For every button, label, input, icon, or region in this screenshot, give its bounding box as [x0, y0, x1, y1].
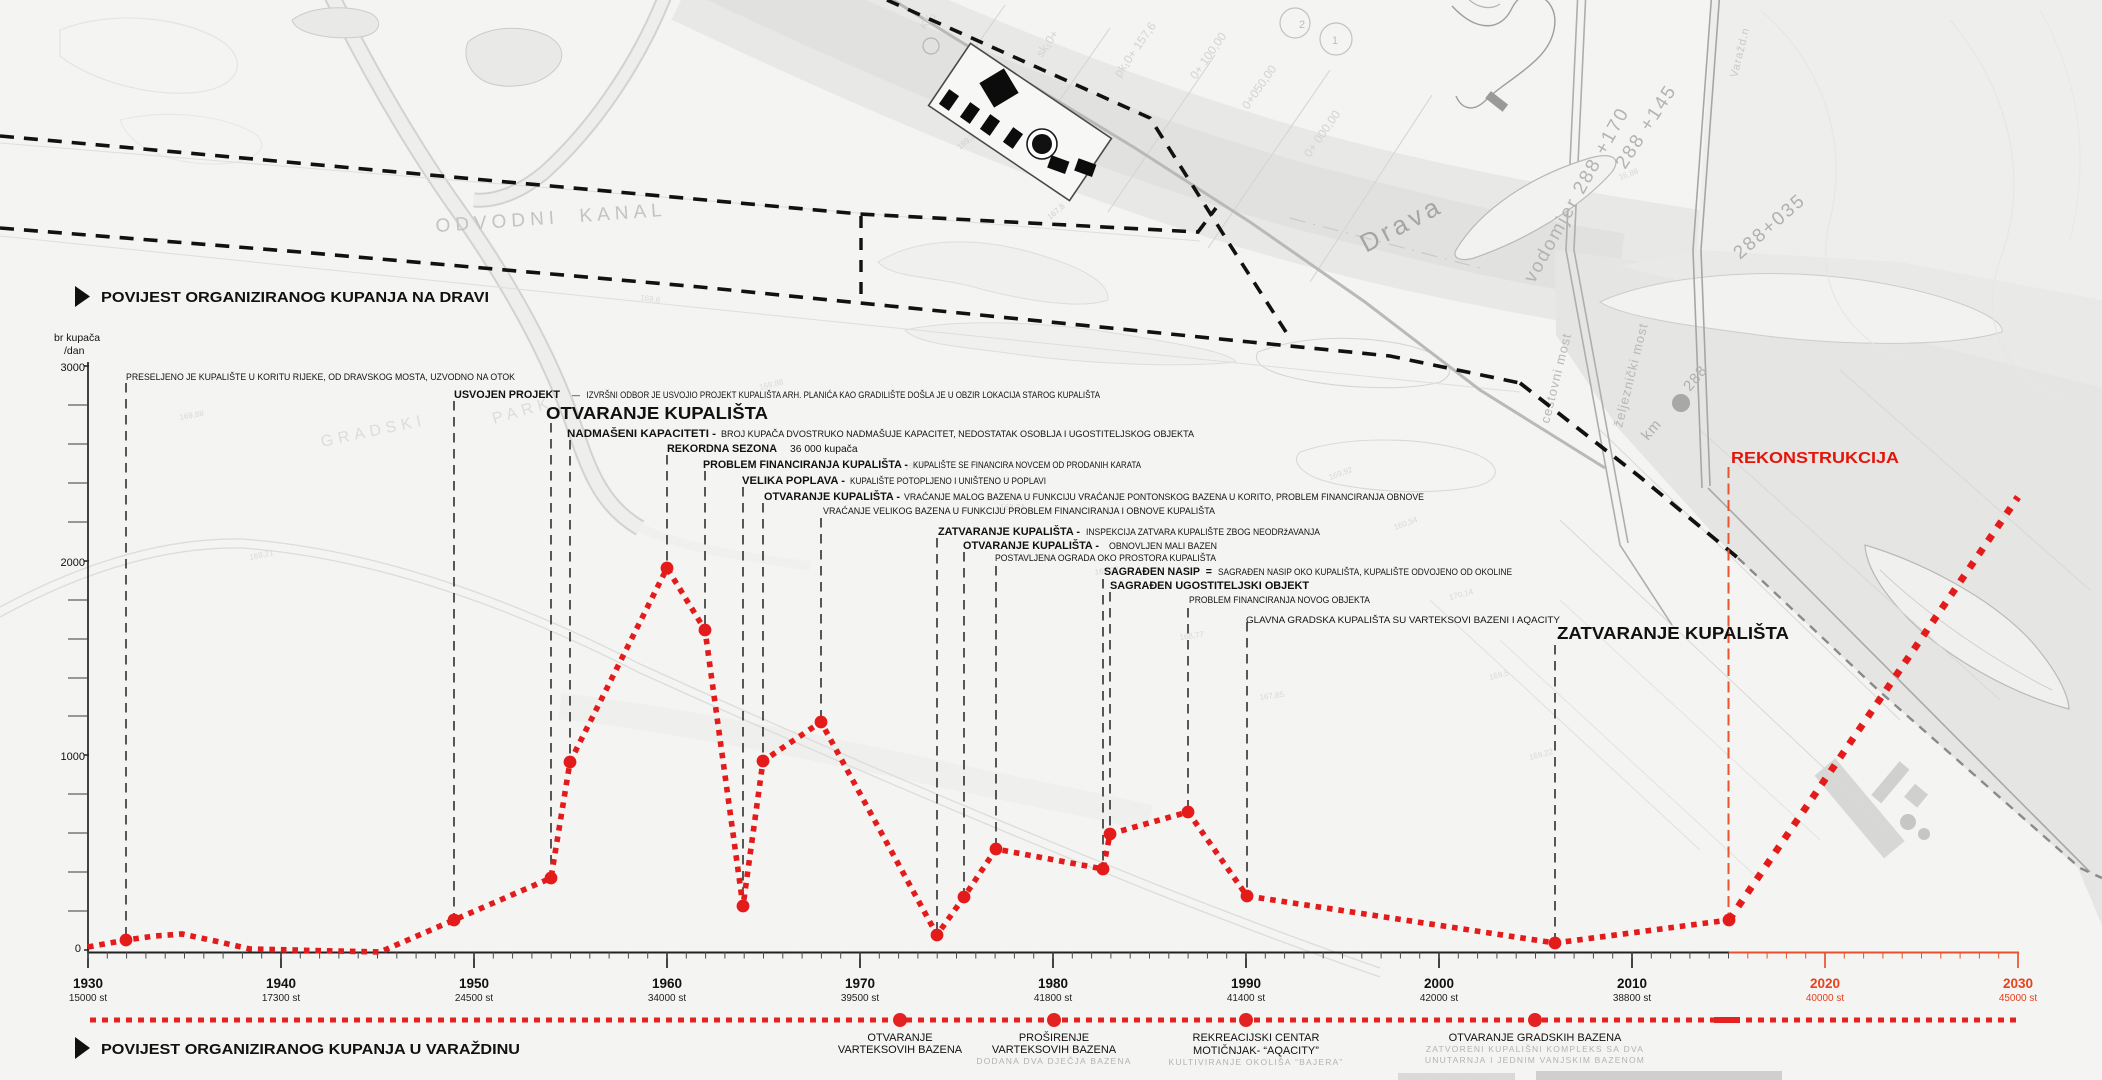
svg-text:VARTEKSOVIH BAZENA: VARTEKSOVIH BAZENA — [992, 1044, 1117, 1056]
svg-text:OTVARANJE KUPALIŠTA: OTVARANJE KUPALIŠTA — [546, 402, 768, 423]
svg-text:br kupača: br kupača — [54, 332, 100, 344]
svg-text:1970: 1970 — [845, 976, 875, 991]
svg-text:34000 st: 34000 st — [648, 993, 687, 1004]
svg-text:OTVARANJE KUPALIŠTA -: OTVARANJE KUPALIŠTA - — [764, 490, 900, 503]
svg-text:OTVARANJE KUPALIŠTA -: OTVARANJE KUPALIŠTA - — [963, 539, 1099, 552]
svg-text:2020: 2020 — [1810, 976, 1840, 991]
svg-text:POVIJEST ORGANIZIRANOG KUPANJA: POVIJEST ORGANIZIRANOG KUPANJA NA DRAVI — [101, 289, 489, 306]
svg-text:1: 1 — [1332, 35, 1338, 47]
svg-text:REKORDNA SEZONA: REKORDNA SEZONA — [667, 443, 777, 455]
svg-text:VRAĆANJE MALOG BAZENA U FUNKCI: VRAĆANJE MALOG BAZENA U FUNKCIJU VRAĆANJ… — [904, 492, 1424, 502]
svg-text:PROBLEM FINANCIRANJA NOVOG OBJ: PROBLEM FINANCIRANJA NOVOG OBJEKTA — [1189, 595, 1371, 605]
svg-text:PRESELJENO JE KUPALIŠTE U KORI: PRESELJENO JE KUPALIŠTE U KORITU RIJEKE,… — [126, 372, 516, 382]
svg-text:1000: 1000 — [61, 751, 85, 763]
svg-text:SAGRAĐEN NASIP OKO KUPALIŠTA,: SAGRAĐEN NASIP OKO KUPALIŠTA, KUPALIŠTE … — [1218, 567, 1512, 577]
svg-text:36 000 kupača: 36 000 kupača — [790, 444, 858, 455]
svg-text:SAGRAĐEN NASIP =: SAGRAĐEN NASIP = — [1104, 566, 1212, 578]
svg-text:2030: 2030 — [2003, 976, 2033, 991]
svg-text:REKREACIJSKI CENTAR: REKREACIJSKI CENTAR — [1193, 1032, 1320, 1044]
svg-text:UNUTARNJA I JEDNIM VANJSKIM BA: UNUTARNJA I JEDNIM VANJSKIM BAZENOM — [1425, 1055, 1645, 1065]
svg-text:40000 st: 40000 st — [1806, 993, 1845, 1004]
svg-text:SAGRAĐEN UGOSTITELJSKI OBJEKT: SAGRAĐEN UGOSTITELJSKI OBJEKT — [1110, 580, 1309, 592]
svg-text:3000: 3000 — [61, 362, 85, 374]
svg-text:/dan: /dan — [64, 345, 85, 357]
svg-text:39500 st: 39500 st — [841, 993, 880, 1004]
svg-text:OTVARANJE: OTVARANJE — [867, 1032, 932, 1044]
svg-text:VRAĆANJE VELIKOG BAZENA U FUNK: VRAĆANJE VELIKOG BAZENA U FUNKCIJU PROBL… — [823, 506, 1216, 516]
svg-text:ZATVORENI KUPALIŠNI KOMPLEKS S: ZATVORENI KUPALIŠNI KOMPLEKS SA DVA — [1426, 1044, 1644, 1054]
svg-text:GLAVNA GRADSKA KUPALIŠTA SU VA: GLAVNA GRADSKA KUPALIŠTA SU VARTEKSOVI B… — [1246, 615, 1560, 625]
svg-text:1980: 1980 — [1038, 976, 1068, 991]
svg-text:1940: 1940 — [266, 976, 296, 991]
svg-text:0: 0 — [75, 943, 81, 955]
svg-text:17300 st: 17300 st — [262, 993, 301, 1004]
svg-text:2000: 2000 — [61, 557, 85, 569]
svg-text:ZATVARANJE KUPALIŠTA: ZATVARANJE KUPALIŠTA — [1557, 622, 1789, 643]
svg-text:1950: 1950 — [459, 976, 489, 991]
svg-text:2: 2 — [1299, 19, 1305, 31]
svg-text:KUPALIŠTE SE FINANCIRA NOVCEM: KUPALIŠTE SE FINANCIRA NOVCEM OD PRODANI… — [913, 460, 1142, 470]
svg-text:OTVARANJE GRADSKIH BAZENA: OTVARANJE GRADSKIH BAZENA — [1449, 1032, 1622, 1044]
svg-text:PROŠIRENJE: PROŠIRENJE — [1019, 1031, 1089, 1044]
svg-text:1990: 1990 — [1231, 976, 1261, 991]
svg-text:OBNOVLJEN MALI BAZEN: OBNOVLJEN MALI BAZEN — [1109, 541, 1217, 551]
svg-text:ZATVARANJE KUPALIŠTA -: ZATVARANJE KUPALIŠTA - — [938, 525, 1080, 538]
svg-text:USVOJEN PROJEKT: USVOJEN PROJEKT — [454, 389, 560, 401]
svg-text:24500 st: 24500 st — [455, 993, 494, 1004]
svg-text:INSPEKCIJA ZATVARA KUPALIŠTE Z: INSPEKCIJA ZATVARA KUPALIŠTE ZBOG NEODRž… — [1086, 527, 1321, 537]
svg-text:KULTIVIRANJE OKOLIŠA “BAJERA”: KULTIVIRANJE OKOLIŠA “BAJERA” — [1169, 1057, 1344, 1067]
svg-text:41800 st: 41800 st — [1034, 993, 1073, 1004]
svg-text:42000 st: 42000 st — [1420, 993, 1459, 1004]
svg-text:POSTAVLJENA OGRADA OKO PROSTOR: POSTAVLJENA OGRADA OKO PROSTORA KUPALIŠT… — [995, 553, 1217, 563]
svg-text:DODANA DVA DJEČJA BAZENA: DODANA DVA DJEČJA BAZENA — [976, 1056, 1131, 1066]
svg-text:15000 st: 15000 st — [69, 993, 108, 1004]
svg-text:41400 st: 41400 st — [1227, 993, 1266, 1004]
svg-text:MOTIČNJAK- “AQACITY”: MOTIČNJAK- “AQACITY” — [1193, 1044, 1319, 1057]
svg-text:45000 st: 45000 st — [1999, 993, 2038, 1004]
svg-text:PROBLEM FINANCIRANJA KUPALIŠTA: PROBLEM FINANCIRANJA KUPALIŠTA - — [703, 458, 908, 471]
svg-text:— IZVRŠNI ODBOR JE USVOJIO P: — IZVRŠNI ODBOR JE USVOJIO PROJEKT KUPAL… — [572, 390, 1101, 400]
svg-text:2010: 2010 — [1617, 976, 1647, 991]
svg-text:NADMAŠENI KAPACITETI -: NADMAŠENI KAPACITETI - — [567, 427, 716, 440]
svg-text:VELIKA POPLAVA -: VELIKA POPLAVA - — [742, 475, 845, 487]
svg-text:1960: 1960 — [652, 976, 682, 991]
svg-text:BROJ KUPAČA DVOSTRUKO NADMAŠUJ: BROJ KUPAČA DVOSTRUKO NADMAŠUJE KAPACITE… — [721, 429, 1195, 439]
svg-text:KUPALIŠTE POTOPLJENO I UNIŠTEN: KUPALIŠTE POTOPLJENO I UNIŠTENO U POPLAV… — [850, 476, 1046, 486]
svg-text:2000: 2000 — [1424, 976, 1454, 991]
svg-text:POVIJEST ORGANIZIRANOG KUPANJA: POVIJEST ORGANIZIRANOG KUPANJA U VARAŽDI… — [101, 1040, 520, 1058]
svg-text:VARTEKSOVIH BAZENA: VARTEKSOVIH BAZENA — [838, 1044, 963, 1056]
svg-text:38800 st: 38800 st — [1613, 993, 1652, 1004]
svg-text:1930: 1930 — [73, 976, 103, 991]
svg-text:REKONSTRUKCIJA: REKONSTRUKCIJA — [1731, 450, 1899, 467]
